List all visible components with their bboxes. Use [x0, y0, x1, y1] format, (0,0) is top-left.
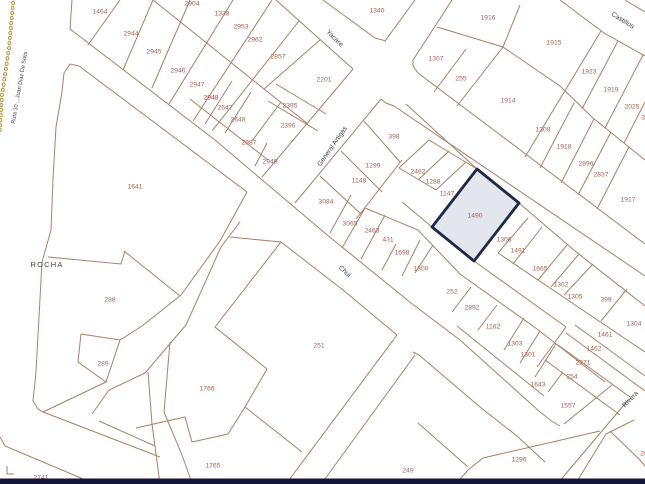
- svg-text:1299: 1299: [366, 162, 381, 169]
- svg-text:2201: 2201: [317, 76, 332, 83]
- svg-text:2837: 2837: [594, 171, 609, 178]
- svg-text:1461: 1461: [598, 331, 613, 338]
- svg-text:1302: 1302: [554, 281, 569, 288]
- svg-text:1162: 1162: [486, 323, 501, 330]
- svg-text:249: 249: [402, 467, 413, 474]
- svg-text:ROCHA: ROCHA: [30, 260, 63, 269]
- svg-text:1916: 1916: [481, 14, 496, 21]
- svg-text:1303: 1303: [508, 340, 523, 347]
- svg-text:2647: 2647: [218, 104, 233, 111]
- svg-text:2648: 2648: [231, 116, 246, 123]
- svg-text:1923: 1923: [582, 68, 597, 75]
- svg-text:1288: 1288: [426, 178, 441, 185]
- svg-text:2896: 2896: [579, 160, 594, 167]
- svg-text:2944: 2944: [124, 30, 139, 37]
- svg-text:431: 431: [382, 236, 393, 243]
- svg-text:1557: 1557: [561, 402, 576, 409]
- svg-text:2953: 2953: [234, 23, 249, 30]
- svg-text:2962: 2962: [248, 36, 263, 43]
- svg-text:1917: 1917: [621, 196, 636, 203]
- svg-text:2271: 2271: [576, 359, 591, 366]
- svg-text:2462: 2462: [411, 168, 426, 175]
- svg-text:1918: 1918: [557, 143, 572, 150]
- svg-text:1462: 1462: [587, 345, 602, 352]
- svg-text:2947: 2947: [190, 81, 205, 88]
- svg-text:1766: 1766: [200, 385, 215, 392]
- svg-text:20: 20: [640, 450, 645, 457]
- svg-text:1304: 1304: [627, 320, 642, 327]
- svg-text:399: 399: [600, 296, 611, 303]
- svg-text:251: 251: [313, 342, 324, 349]
- svg-text:2987: 2987: [242, 139, 257, 146]
- svg-text:1300: 1300: [414, 265, 429, 272]
- svg-text:1915: 1915: [547, 39, 562, 46]
- svg-text:1914: 1914: [501, 97, 516, 104]
- svg-text:1665: 1665: [533, 265, 548, 272]
- svg-text:1464: 1464: [93, 8, 108, 15]
- svg-text:1338: 1338: [215, 10, 230, 17]
- svg-text:1148: 1148: [352, 177, 367, 184]
- svg-text:1919: 1919: [604, 86, 619, 93]
- svg-text:2396: 2396: [281, 122, 296, 129]
- svg-text:2463: 2463: [365, 227, 380, 234]
- svg-text:1306: 1306: [497, 236, 512, 243]
- svg-text:2904: 2904: [185, 0, 200, 7]
- svg-text:398: 398: [388, 133, 399, 140]
- svg-text:2395: 2395: [283, 102, 298, 109]
- svg-text:288: 288: [104, 296, 115, 303]
- svg-text:1147: 1147: [440, 190, 455, 197]
- svg-text:252: 252: [446, 288, 457, 295]
- svg-text:1641: 1641: [128, 183, 143, 190]
- svg-text:2025: 2025: [625, 103, 640, 110]
- svg-text:1491: 1491: [511, 247, 526, 254]
- svg-text:255: 255: [455, 75, 466, 82]
- svg-text:1490: 1490: [468, 212, 483, 219]
- svg-text:2949: 2949: [263, 158, 278, 165]
- svg-text:2948: 2948: [204, 94, 219, 101]
- svg-text:1308: 1308: [536, 126, 551, 133]
- svg-text:1765: 1765: [206, 462, 221, 469]
- svg-text:3084: 3084: [319, 198, 334, 205]
- svg-text:1698: 1698: [395, 249, 410, 256]
- svg-text:1340: 1340: [370, 7, 385, 14]
- svg-text:1301: 1301: [521, 351, 536, 358]
- svg-text:304: 304: [641, 114, 645, 121]
- svg-text:1296: 1296: [512, 456, 527, 463]
- svg-text:254: 254: [566, 373, 577, 380]
- svg-text:2892: 2892: [465, 304, 480, 311]
- svg-text:2946: 2946: [171, 67, 186, 74]
- svg-text:289: 289: [97, 360, 108, 367]
- svg-text:1305: 1305: [568, 293, 583, 300]
- svg-text:2945: 2945: [147, 48, 162, 55]
- svg-text:3065: 3065: [343, 220, 358, 227]
- svg-text:2857: 2857: [271, 53, 286, 60]
- svg-text:1307: 1307: [429, 55, 444, 62]
- svg-text:1643: 1643: [531, 381, 546, 388]
